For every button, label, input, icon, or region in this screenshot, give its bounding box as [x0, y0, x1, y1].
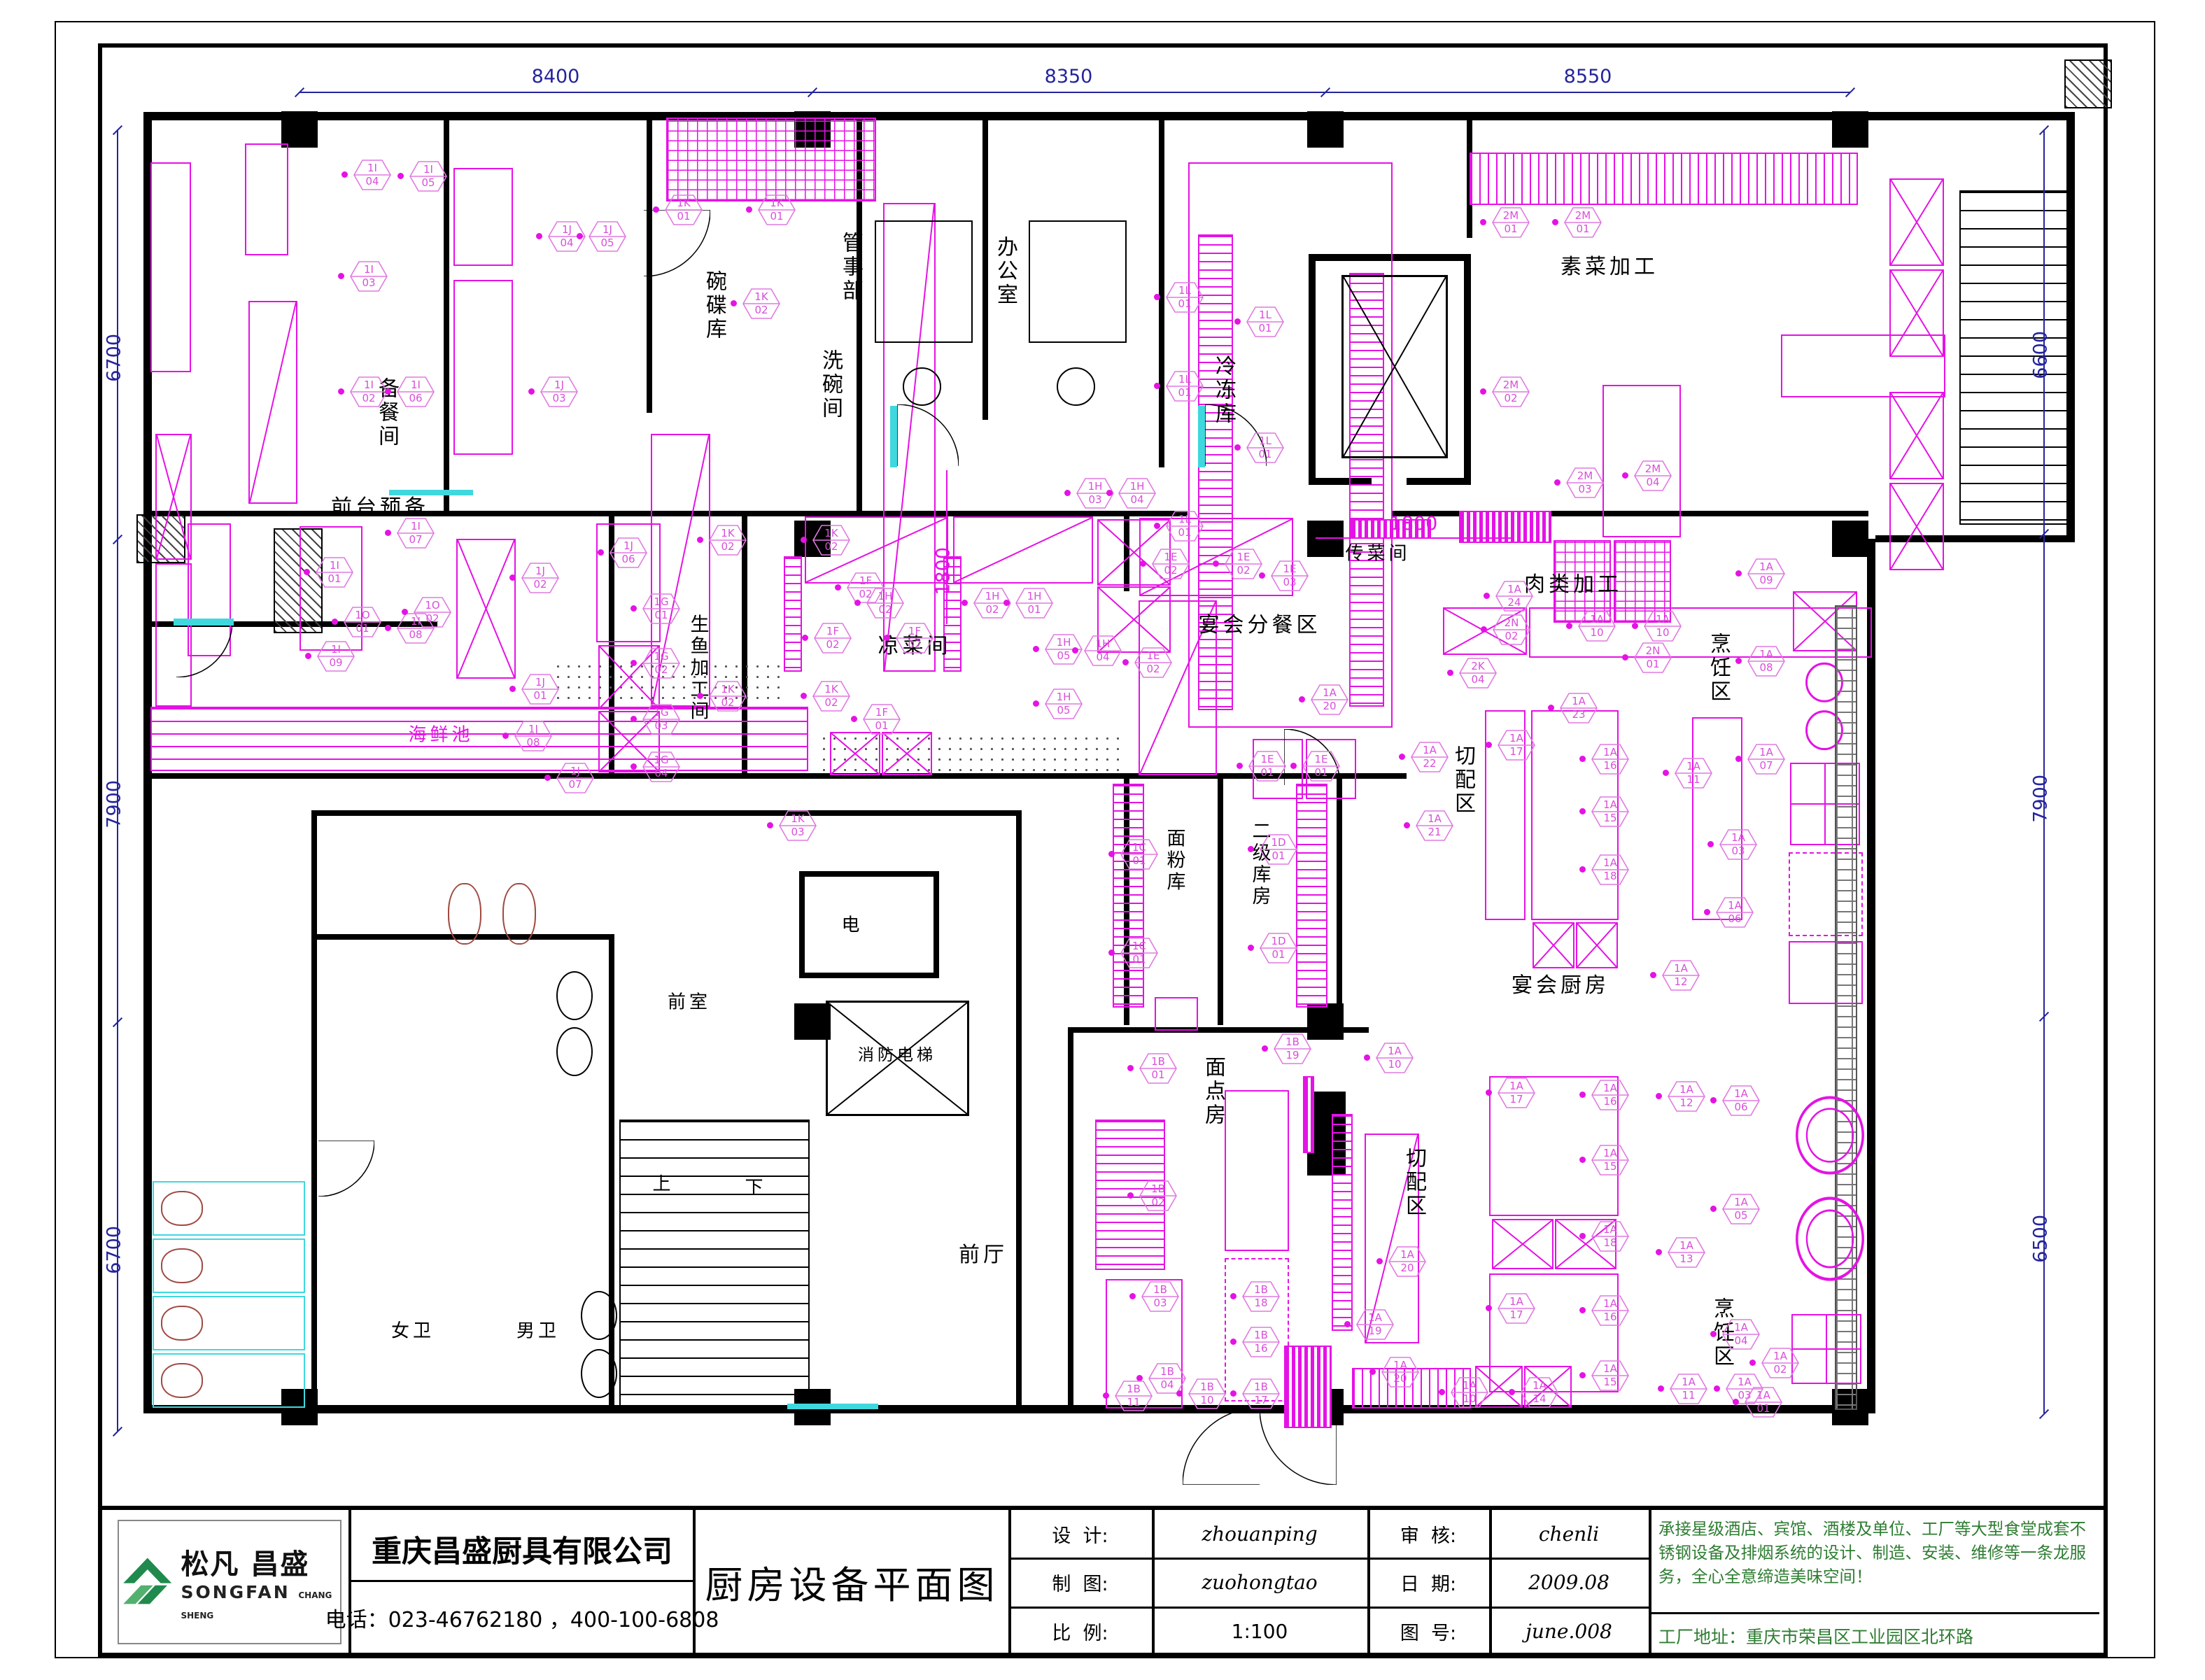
leader-dot [1213, 560, 1219, 567]
dimension-label: 8350 [1045, 66, 1093, 87]
equipment-tag: 1H02 [866, 588, 904, 619]
equipment-tag: 2K04 [1459, 658, 1497, 689]
leader-dot [305, 653, 311, 659]
leader-dot [767, 822, 773, 828]
room-label: 下 [745, 1173, 766, 1199]
door-swing [318, 1141, 374, 1197]
toilet-fixture [161, 1363, 203, 1398]
toilet-fixture [502, 883, 536, 945]
door-threshold [174, 619, 234, 626]
leader-dot [1484, 593, 1490, 599]
equipment-tag: 1H05 [1045, 689, 1083, 719]
equipment-tag: 1G02 [642, 648, 680, 679]
leader-dot [1480, 388, 1486, 395]
equipment-tag: 1A14 [1521, 1377, 1558, 1408]
equipment-bdesk [1029, 220, 1127, 343]
room-label: 传菜间 [1345, 539, 1410, 565]
equipment-out [453, 168, 513, 266]
equipment-tag: 1A11 [1670, 1374, 1707, 1404]
leader-dot [1230, 1293, 1237, 1299]
leader-dot [1579, 1307, 1586, 1313]
equipment-diag [953, 516, 1093, 584]
room-label: 冷冻库 [1208, 355, 1239, 426]
dimension-label: 6600 [2030, 331, 2052, 379]
equipment-tag: 1K02 [742, 288, 780, 319]
leader-dot [536, 233, 542, 239]
equipment-tag: 1A18 [1591, 1221, 1629, 1252]
leader-dot [1376, 1258, 1383, 1264]
leader-dot [1129, 1293, 1136, 1299]
equipment-tag: 1J03 [540, 376, 578, 407]
field-review-value: chenli [1489, 1510, 1649, 1558]
equipment-tag: 2M02 [1492, 376, 1530, 407]
equipment-tag: 1I04 [353, 160, 391, 190]
wall [1016, 810, 1022, 1413]
equipment-tag: 1B02 [1139, 1180, 1177, 1211]
room-label: 办公室 [989, 236, 1020, 307]
equipment-out [245, 143, 288, 255]
room-label: 前室 [668, 988, 711, 1014]
equipment-tag: 1A13 [1668, 1237, 1705, 1268]
equipment-tag: 1A15 [1591, 796, 1629, 827]
equipment-tag: 1G04 [642, 751, 680, 782]
equipment-tag: 1L01 [1246, 432, 1284, 463]
room-label: 面点房 [1197, 1056, 1228, 1127]
equipment-cross [1889, 392, 1944, 479]
leader-dot [1486, 1089, 1492, 1096]
equipment-tag: 1A12 [1668, 1081, 1705, 1112]
logo-en-text: SONGFAN CHANG SHENG [181, 1582, 340, 1623]
equipment-tag: 1A24 [1495, 581, 1533, 612]
equipment-cross [1576, 922, 1618, 968]
equipment-tag: 1L01 [1166, 371, 1204, 402]
leader-dot [1064, 490, 1071, 496]
equipment-tag: 1B01 [1139, 1053, 1177, 1084]
leader-dot [1122, 659, 1129, 665]
door-threshold [890, 406, 897, 467]
leader-dot [1704, 909, 1710, 915]
floor-plan: 备餐间洗碗间碗碟库管事部办公室冷冻库传菜间素菜加工肉类加工前台预备海鲜池生鱼加工… [0, 0, 2205, 1506]
leader-dot [1486, 1305, 1492, 1311]
room-label: 生鱼加工间 [684, 614, 712, 723]
equipment-shelfv [1470, 153, 1858, 205]
leader-dot [1710, 1331, 1717, 1337]
equipment-tag: 1A05 [1722, 1194, 1760, 1224]
wall [143, 112, 2075, 120]
leader-dot [385, 388, 391, 395]
toilet-fixture [161, 1306, 203, 1341]
equipment-tag: 1I09 [317, 641, 355, 672]
equipment-out [150, 162, 191, 372]
equipment-tag: 1A10 [1578, 611, 1616, 642]
leader-dot [630, 763, 637, 770]
leader-dot [1509, 1389, 1515, 1395]
leader-dot [1072, 647, 1078, 654]
equipment-tag: 1A20 [1388, 1246, 1426, 1277]
leader-dot [1033, 646, 1039, 652]
structural-column [281, 111, 318, 148]
equipment-ladder [1296, 784, 1327, 1008]
leader-dot [1003, 600, 1010, 606]
toilet-fixture [161, 1191, 203, 1226]
leader-dot [1127, 1192, 1134, 1199]
leader-dot [1710, 1206, 1717, 1212]
field-no-label: 图 号: [1367, 1607, 1489, 1656]
equipment-cross [1889, 178, 1944, 266]
leader-dot [598, 549, 604, 556]
equipment-tag: 1I05 [409, 161, 447, 192]
equipment-cross [830, 732, 880, 775]
wall [311, 810, 1022, 816]
leader-dot [1234, 318, 1241, 325]
leader-dot [577, 233, 583, 239]
elevator-shaft [1341, 275, 1448, 458]
door-threshold [787, 1404, 878, 1409]
equipment-ring1 [1789, 1188, 1871, 1290]
equipment-tag: 1J07 [556, 763, 594, 793]
leader-dot [1290, 763, 1297, 769]
equipment-tag: 1B03 [1141, 1281, 1179, 1312]
equipment-tag: 1D01 [1260, 834, 1297, 865]
equipment-tag: 1A04 [1722, 1319, 1760, 1350]
hatched-column [2064, 59, 2112, 108]
leader-dot [1248, 945, 1254, 951]
equipment-cross [155, 434, 192, 560]
leader-dot [1552, 219, 1558, 225]
field-date-value: 2009.08 [1489, 1558, 1649, 1607]
equipment-tag: 2N02 [1493, 614, 1530, 645]
dimension-line [300, 92, 1850, 93]
equipment-tag: 1B10 [1188, 1378, 1226, 1409]
equipment-tag: 1H04 [1118, 478, 1156, 509]
leader-dot [1579, 1092, 1586, 1098]
leader-dot [1154, 294, 1160, 300]
toilet-fixture [448, 883, 481, 945]
leader-dot [1481, 626, 1487, 633]
equipment-tag: 1A21 [1416, 810, 1453, 841]
room-label: 素菜加工 [1561, 249, 1658, 280]
equipment-tag: 1J08 [514, 721, 552, 751]
company-logo: 松凡 昌盛 SONGFAN CHANG SHENG [118, 1520, 341, 1644]
equipment-tag: 1E02 [1152, 549, 1190, 579]
leader-dot [1108, 851, 1115, 857]
equipment-tag: 1E03 [1271, 560, 1309, 591]
equipment-tag: 1A10 [1644, 611, 1682, 642]
leader-dot [1707, 841, 1714, 847]
leader-dot [653, 206, 659, 213]
equipment-tag: 1A17 [1498, 1078, 1535, 1108]
leader-dot [697, 693, 703, 699]
wall [982, 112, 988, 420]
room-label: 海鲜池 [408, 721, 473, 747]
leader-dot [835, 584, 841, 591]
leader-dot [1733, 1399, 1739, 1405]
room-label: 切配区 [1398, 1147, 1429, 1218]
leader-dot [1299, 696, 1305, 703]
logo-cn-text: 松凡 昌盛 [181, 1541, 309, 1582]
equipment-grid4 [1791, 1314, 1861, 1384]
equipment-tag: 1B04 [1148, 1363, 1186, 1394]
field-design-label: 设 计: [1008, 1510, 1152, 1558]
equipment-tag: 1F01 [863, 704, 901, 735]
equipment-cross [1533, 922, 1575, 968]
equipment-tag: 1J01 [521, 674, 559, 705]
equipment-tag: 1A15 [1591, 1360, 1629, 1391]
leader-dot [1663, 770, 1669, 776]
leader-dot [1108, 950, 1115, 956]
equipment-tag: 1C01 [1120, 938, 1158, 968]
dimension-label: 8400 [532, 66, 580, 87]
equipment-tag: 2M01 [1492, 207, 1530, 238]
equipment-cross [1889, 483, 1944, 570]
leader-dot [1230, 1339, 1237, 1345]
leader-dot [304, 569, 310, 575]
equipment-tag: 1K02 [709, 681, 747, 712]
equipment-tag: 1K02 [812, 525, 850, 556]
leader-dot [1344, 1321, 1351, 1327]
leader-dot [1622, 472, 1628, 479]
dimension-label: 7900 [2030, 775, 2052, 823]
drawing-title: 厨房设备平面图 [696, 1510, 1008, 1653]
leader-dot [338, 273, 344, 279]
leader-dot [802, 635, 808, 641]
leader-dot [1566, 623, 1572, 629]
equipment-tag: 1I06 [397, 376, 435, 407]
equipment-tag: 1J02 [521, 563, 559, 593]
leader-dot [1658, 1385, 1664, 1392]
leader-dot [1176, 1390, 1183, 1397]
leader-dot [851, 716, 857, 722]
equipment-tag: 1K01 [665, 195, 703, 225]
equipment-out [1781, 334, 1945, 397]
leader-dot [385, 625, 391, 631]
staircase [1959, 190, 2073, 525]
equipment-tag: 1A12 [1662, 960, 1700, 991]
equipment-tag: 1J06 [610, 537, 647, 568]
equipment-tag: 2N01 [1634, 642, 1672, 673]
company-promo-text: 承接星级酒店、宾馆、酒楼及单位、工厂等大型食堂成套不锈钢设备及排烟系统的设计、制… [1651, 1514, 2099, 1611]
equipment-grid [666, 118, 876, 202]
equipment-out [1692, 717, 1742, 920]
equipment-tag: 1K03 [779, 810, 817, 841]
equipment-tag: 1A07 [1747, 744, 1785, 775]
equipment-tag: 1H01 [1015, 588, 1053, 619]
equipment-tag: 2M03 [1566, 467, 1604, 498]
room-label: 男卫 [516, 1317, 560, 1343]
room-label: 洗碗间 [815, 349, 845, 421]
wall [799, 871, 939, 877]
equipment-ladder [1113, 784, 1144, 1008]
leader-dot [1439, 1389, 1445, 1395]
door-swing [176, 621, 232, 677]
equipment-tag: 1D01 [1260, 933, 1297, 963]
dimension-line [1316, 537, 1512, 539]
room-label: 切配区 [1447, 744, 1478, 816]
leader-dot [1106, 490, 1113, 496]
equipment-tag: 1E02 [1134, 647, 1172, 678]
equipment-tag: 1A08 [1747, 646, 1785, 677]
structural-column [1832, 521, 1868, 557]
leader-dot [1404, 822, 1410, 828]
dimension-label: 7900 [104, 780, 125, 828]
dimension-label: 8550 [1564, 66, 1612, 87]
equipment-tag: 1C01 [1120, 839, 1158, 870]
room-label: 肉类加工 [1524, 567, 1622, 598]
door-threshold [1198, 406, 1205, 467]
leader-dot [854, 600, 861, 606]
equipment-out [1225, 1090, 1289, 1251]
wall [799, 871, 805, 976]
equipment-out [1155, 997, 1198, 1031]
equipment-tag: 1B16 [1242, 1327, 1280, 1357]
equipment-tag: 1B17 [1242, 1378, 1280, 1409]
leader-dot [509, 574, 516, 581]
equipment-bcirc [556, 1027, 593, 1076]
equipment-tag: 1B18 [1242, 1281, 1280, 1312]
wall [311, 810, 317, 1413]
leader-dot [1234, 444, 1241, 451]
leader-dot [731, 300, 737, 306]
toilet-fixture [161, 1248, 203, 1283]
equipment-tag: 1A03 [1719, 829, 1757, 860]
leader-dot [1650, 972, 1656, 978]
equipment-tag: 1A09 [1747, 558, 1785, 589]
equipment-tag: 1E02 [1225, 549, 1262, 579]
leader-dot [1237, 763, 1243, 769]
equipment-tag: 1G01 [642, 593, 680, 624]
equipment-tag: 1A17 [1498, 1293, 1535, 1324]
leader-dot [1364, 1054, 1370, 1061]
door-swing [1183, 1408, 1260, 1485]
leader-dot [1656, 1093, 1662, 1099]
equipment-tag: 2M04 [1634, 460, 1672, 491]
equipment-cross [882, 732, 932, 775]
equipment-tag: 1I02 [350, 376, 388, 407]
leader-dot [341, 171, 348, 178]
field-draft-label: 制 图: [1008, 1558, 1152, 1607]
equipment-tag: 1F02 [814, 623, 852, 654]
dimension-label: 6500 [2030, 1215, 2052, 1263]
equipment-tag: 1F02 [896, 623, 934, 654]
leader-dot [1140, 560, 1146, 567]
equipment-tag: 1I01 [316, 557, 353, 588]
leader-dot [801, 693, 807, 699]
equipment-tag: 1B11 [1115, 1381, 1153, 1411]
leader-dot [1579, 1372, 1586, 1378]
equipment-bcirc [581, 1349, 617, 1398]
field-date-label: 日 期: [1367, 1558, 1489, 1607]
equipment-bdesk [875, 220, 973, 343]
equipment-tag: 1B19 [1274, 1033, 1311, 1064]
equipment-tag: 1L01 [1166, 282, 1204, 313]
equipment-cross [456, 539, 516, 679]
room-label: 前台预备 [331, 490, 429, 521]
equipment-tag: 1I07 [397, 518, 435, 549]
leader-dot [1262, 1045, 1268, 1052]
room-label: 烹饪区 [1703, 633, 1733, 704]
leader-dot [1735, 570, 1742, 577]
equipment-cross [1492, 1219, 1554, 1269]
equipment-tag: 1A18 [1591, 854, 1629, 885]
field-no-value: june.008 [1489, 1607, 1649, 1656]
wall [1218, 773, 1223, 1025]
equipment-bchair [1057, 367, 1095, 406]
equipment-bcirc [556, 971, 593, 1020]
equipment-tag: 1O01 [344, 607, 381, 637]
tb-divider [1649, 1612, 2099, 1614]
company-phone: 电话：023-46762180 ，400-100-6808 [354, 1583, 690, 1653]
equipment-tag: 1A23 [1560, 693, 1598, 723]
field-draft-value: zuohongtao [1152, 1558, 1367, 1607]
wall [1068, 1027, 1073, 1413]
room-label: 管事部 [835, 232, 866, 303]
leader-dot [1632, 623, 1638, 629]
leader-dot [402, 609, 408, 615]
door-swing [1260, 1408, 1337, 1485]
leader-dot [1656, 1249, 1662, 1255]
leader-dot [801, 537, 807, 543]
leader-dot [1554, 479, 1561, 486]
equipment-tag: 2M01 [1564, 207, 1602, 238]
leader-dot [1154, 383, 1160, 389]
wall [143, 1405, 1875, 1413]
structural-column [1832, 111, 1868, 148]
leader-dot [1714, 1385, 1720, 1392]
structural-column [1307, 1003, 1344, 1040]
leader-dot [338, 388, 344, 395]
room-label: 碗碟库 [698, 270, 729, 341]
leader-dot [1399, 754, 1405, 760]
equipment-tag: 1A10 [1376, 1043, 1414, 1073]
wall [609, 934, 614, 1413]
leader-dot [1579, 756, 1586, 762]
leader-dot [1447, 670, 1453, 676]
leader-dot [397, 173, 404, 179]
equipment-tag: 1G03 [642, 704, 680, 735]
equipment-tag: 1L01 [1166, 511, 1204, 542]
room-label: 前厅 [959, 1237, 1008, 1268]
equipment-tag: 1A16 [1591, 744, 1629, 775]
leader-dot [1735, 658, 1742, 664]
equipment-tag: 1A20 [1381, 1357, 1419, 1388]
equipment-tag: 1A02 [1761, 1348, 1799, 1378]
equipment-bcirc [581, 1291, 617, 1340]
equipment-bchair [903, 367, 941, 406]
equipment-tag: 1A06 [1716, 897, 1754, 928]
factory-address: 工厂地址：重庆市荣昌区工业园区北环路 [1651, 1616, 2099, 1656]
leader-dot [1154, 523, 1160, 529]
leader-dot [502, 733, 509, 739]
wall [1464, 254, 1471, 485]
equipment-tag: 1A11 [1675, 758, 1712, 789]
field-scale-label: 比 例: [1008, 1607, 1152, 1656]
leader-dot [697, 537, 703, 543]
equipment-tag: 1I03 [350, 261, 388, 292]
equipment-tag: 1L01 [1246, 306, 1284, 337]
leader-dot [1486, 742, 1492, 748]
equipment-tag: 1H04 [1084, 635, 1122, 666]
leader-dot [1248, 846, 1254, 852]
leader-dot [630, 660, 637, 666]
leader-dot [1369, 1369, 1376, 1375]
leader-dot [1710, 1097, 1717, 1103]
equipment-tag: 1A22 [1411, 742, 1449, 772]
equipment-tag: 1J05 [589, 221, 626, 252]
wall [799, 973, 939, 978]
field-design-value: zhouanping [1152, 1510, 1367, 1558]
equipment-tag: 1K02 [812, 681, 850, 712]
equipment-tag: 1A15 [1591, 1145, 1629, 1176]
